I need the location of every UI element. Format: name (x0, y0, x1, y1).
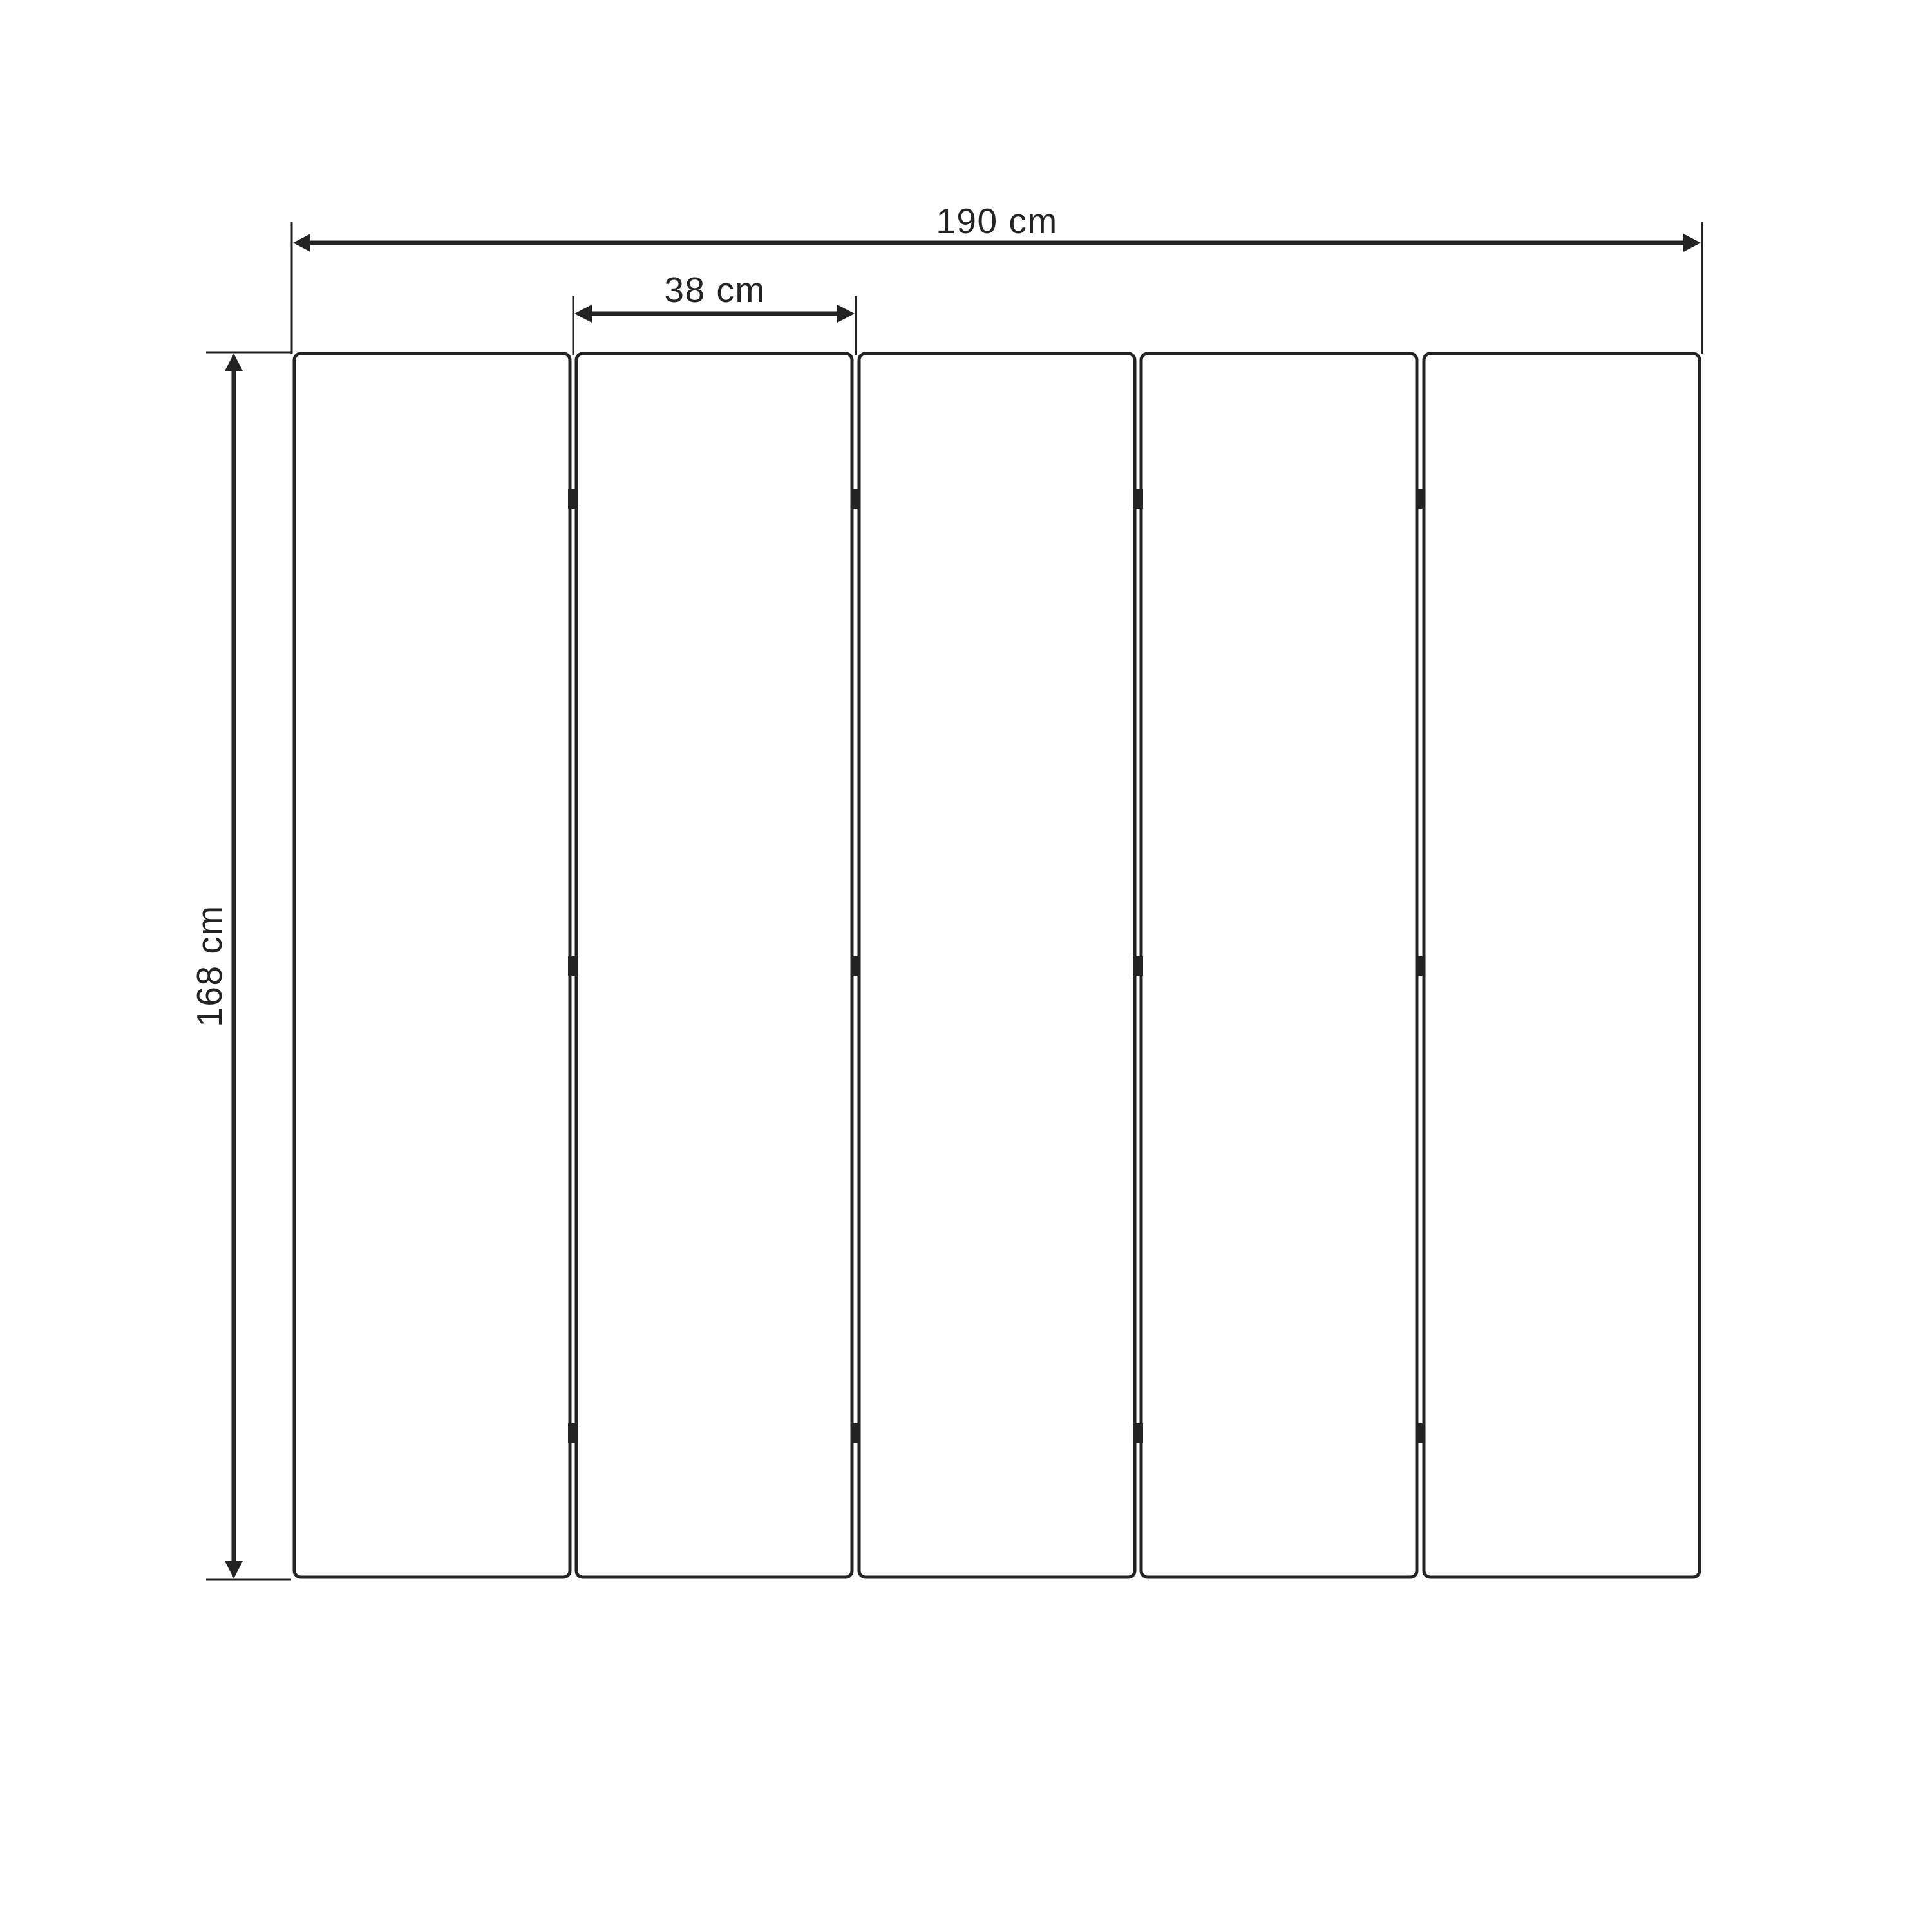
panel-3 (859, 354, 1135, 1577)
arrowhead-down-icon (225, 1561, 243, 1578)
panel-5 (1424, 354, 1700, 1577)
arrowhead-right-icon (837, 305, 855, 323)
hinge-icon (1133, 1423, 1143, 1443)
drawing-canvas: 190 cm 38 cm 168 cm (0, 0, 1932, 1932)
arrowhead-right-icon (1683, 234, 1701, 252)
hinge-icon (568, 956, 578, 976)
hinge-icon (851, 956, 861, 976)
height-dimension: 168 cm (189, 352, 291, 1580)
hinge-icon (1133, 489, 1143, 509)
hinge-icon (568, 1423, 578, 1443)
panel-width-label: 38 cm (664, 270, 765, 310)
height-label: 168 cm (189, 905, 229, 1027)
hinge-icon (568, 489, 578, 509)
hinge-icon (1416, 956, 1426, 976)
panel-1 (294, 354, 570, 1577)
hinge-icon (851, 1423, 861, 1443)
total-width-label: 190 cm (936, 201, 1057, 241)
panels (294, 354, 1700, 1577)
folding-screen-diagram: 190 cm 38 cm 168 cm (0, 0, 1932, 1932)
arrowhead-up-icon (225, 354, 243, 371)
panel-2 (576, 354, 852, 1577)
hinge-icon (1416, 1423, 1426, 1443)
total-width-dimension: 190 cm (292, 201, 1702, 354)
hinge-icon (851, 489, 861, 509)
hinge-icon (1416, 489, 1426, 509)
panel-4 (1141, 354, 1417, 1577)
arrowhead-left-icon (574, 305, 592, 323)
arrowhead-left-icon (293, 234, 310, 252)
panel-width-dimension: 38 cm (573, 270, 856, 355)
hinge-icon (1133, 956, 1143, 976)
